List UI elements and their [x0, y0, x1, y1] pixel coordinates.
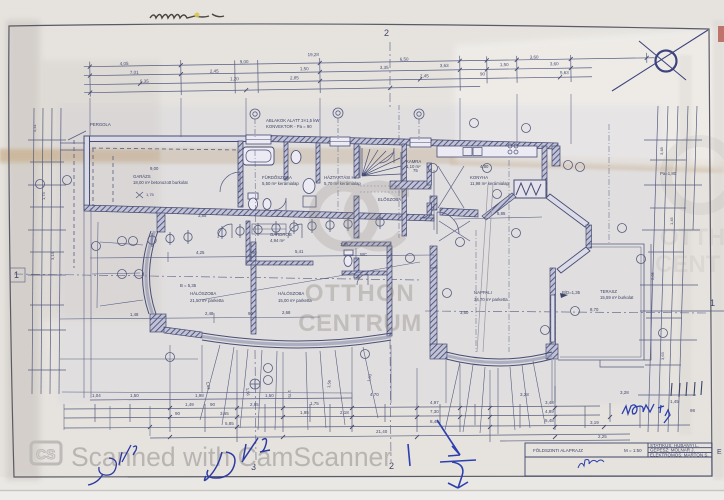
- svg-text:5,50 m² kerámialap: 5,50 m² kerámialap: [262, 181, 299, 186]
- svg-text:5,41: 5,41: [295, 249, 304, 254]
- svg-text:19,28: 19,28: [308, 52, 320, 57]
- svg-text:3,60: 3,60: [460, 310, 469, 315]
- svg-text:NAPPALI: NAPPALI: [474, 290, 492, 295]
- svg-text:M = 1:50: M = 1:50: [624, 448, 642, 453]
- svg-text:1,45: 1,45: [670, 399, 679, 404]
- svg-text:7,01: 7,01: [130, 70, 139, 75]
- svg-text:HÁLÓSZOBA: HÁLÓSZOBA: [278, 291, 304, 296]
- svg-text:75: 75: [413, 168, 418, 173]
- svg-text:15,59 m² burkolat: 15,59 m² burkolat: [600, 295, 634, 300]
- svg-text:1: 1: [710, 298, 715, 308]
- svg-text:7,30: 7,30: [430, 409, 439, 414]
- svg-text:2,25: 2,25: [598, 434, 607, 439]
- svg-text:5,85: 5,85: [497, 211, 506, 216]
- svg-text:21,40: 21,40: [376, 429, 388, 434]
- svg-text:OTTH: OTTH: [660, 224, 724, 251]
- svg-text:4,80: 4,80: [480, 164, 489, 169]
- svg-text:3,14: 3,14: [50, 251, 55, 260]
- svg-text:5,41: 5,41: [32, 123, 37, 132]
- svg-text:PERGOLA: PERGOLA: [90, 122, 111, 127]
- svg-text:KONYHA: KONYHA: [470, 175, 488, 180]
- svg-text:FÖLDSZINTI ALAPRAJZ: FÖLDSZINTI ALAPRAJZ: [533, 447, 583, 453]
- svg-text:KONVEKTOR - Pa = 90: KONVEKTOR - Pa = 90: [266, 124, 312, 129]
- svg-text:11,98 m² kerámialap: 11,98 m² kerámialap: [470, 181, 509, 186]
- svg-text:3,28: 3,28: [620, 390, 629, 395]
- svg-text:90: 90: [252, 250, 257, 255]
- svg-text:4,94 m²: 4,94 m²: [270, 238, 285, 243]
- svg-text:TERASZ: TERASZ: [600, 289, 617, 294]
- svg-text:3,65: 3,65: [220, 411, 229, 416]
- svg-text:ELEKTROMOS: MÁRTON S.: ELEKTROMOS: MÁRTON S.: [650, 451, 709, 457]
- svg-text:1,74: 1,74: [41, 191, 46, 200]
- svg-text:90: 90: [210, 402, 216, 407]
- svg-text:E: E: [717, 449, 722, 456]
- svg-text:1,75: 1,75: [287, 390, 292, 399]
- svg-text:90: 90: [480, 71, 486, 76]
- svg-text:1,50: 1,50: [265, 393, 274, 398]
- svg-text:4,70: 4,70: [370, 392, 379, 397]
- svg-text:1,75: 1,75: [146, 192, 155, 197]
- svg-text:CENT: CENT: [655, 251, 721, 278]
- svg-text:1,50: 1,50: [300, 66, 309, 71]
- svg-text:3,60: 3,60: [550, 61, 559, 66]
- svg-text:8,70: 8,70: [590, 307, 599, 312]
- svg-text:9,00: 9,00: [150, 166, 159, 171]
- svg-text:3,63: 3,63: [440, 63, 449, 68]
- svg-text:90: 90: [248, 311, 253, 316]
- svg-text:3,19: 3,19: [590, 420, 599, 425]
- svg-text:CENTRUM: CENTRUM: [298, 310, 422, 337]
- svg-text:2,18: 2,18: [340, 410, 349, 415]
- svg-text:GARÁZS: GARÁZS: [133, 174, 151, 179]
- svg-text:CS: CS: [36, 446, 55, 462]
- svg-text:3,60: 3,60: [530, 55, 539, 60]
- svg-text:1,98: 1,98: [195, 393, 204, 398]
- svg-text:4,05: 4,05: [120, 61, 129, 66]
- svg-text:ABLAKOK ALATT 3×1,5 kW: ABLAKOK ALATT 3×1,5 kW: [266, 118, 320, 123]
- svg-text:2,48: 2,48: [205, 311, 214, 316]
- svg-text:B = 5,35: B = 5,35: [180, 283, 197, 288]
- svg-text:1,04: 1,04: [92, 393, 101, 398]
- svg-text:1,75: 1,75: [310, 401, 319, 406]
- svg-text:6,50: 6,50: [400, 57, 409, 62]
- svg-text:GARDROB: GARDROB: [270, 232, 292, 237]
- svg-text:HÁZTARTÁSI H.: HÁZTARTÁSI H.: [324, 175, 356, 180]
- svg-text:98: 98: [690, 408, 696, 413]
- svg-text:2,68: 2,68: [282, 310, 291, 315]
- svg-text:4,25: 4,25: [196, 250, 205, 255]
- svg-text:3,48: 3,48: [659, 146, 664, 155]
- svg-text:1,20: 1,20: [230, 76, 239, 81]
- svg-text:5,63: 5,63: [560, 70, 569, 75]
- svg-text:1,49: 1,49: [185, 402, 194, 407]
- svg-text:2,85: 2,85: [290, 75, 299, 80]
- svg-text:1: 1: [14, 270, 19, 280]
- svg-text:21,50 m² parketta: 21,50 m² parketta: [190, 298, 224, 303]
- svg-text:90: 90: [175, 411, 181, 416]
- svg-text:HÁLÓSZOBA: HÁLÓSZOBA: [190, 291, 216, 296]
- svg-text:1,48: 1,48: [130, 312, 139, 317]
- svg-text:2,45: 2,45: [210, 69, 219, 74]
- svg-text:B/D=1,35: B/D=1,35: [562, 290, 581, 295]
- svg-text:1,50: 1,50: [500, 62, 509, 67]
- svg-text:WC: WC: [360, 252, 367, 257]
- svg-text:3,35: 3,35: [380, 65, 389, 70]
- svg-text:2,85: 2,85: [250, 402, 259, 407]
- svg-text:3,85: 3,85: [198, 213, 207, 218]
- svg-text:9,00: 9,00: [240, 59, 249, 64]
- svg-text:1,56: 1,56: [326, 379, 332, 388]
- svg-text:FÜRDŐSZOBA: FÜRDŐSZOBA: [262, 175, 292, 180]
- svg-text:34,70 m² parketta: 34,70 m² parketta: [474, 297, 508, 302]
- svg-text:2: 2: [384, 28, 389, 38]
- svg-text:3,48: 3,48: [545, 400, 554, 405]
- svg-text:3,28: 3,28: [520, 392, 529, 397]
- svg-text:OTTHON: OTTHON: [305, 280, 415, 307]
- svg-text:3,63: 3,63: [660, 351, 665, 360]
- svg-text:Scanned with CamScanner: Scanned with CamScanner: [71, 442, 392, 472]
- svg-text:4,97: 4,97: [430, 400, 439, 405]
- svg-text:1,50: 1,50: [130, 393, 139, 398]
- svg-text:5,85: 5,85: [225, 421, 234, 426]
- svg-text:1,56: 1,56: [245, 388, 251, 397]
- svg-text:18,00 m² betonozott burkolat: 18,00 m² betonozott burkolat: [133, 180, 189, 185]
